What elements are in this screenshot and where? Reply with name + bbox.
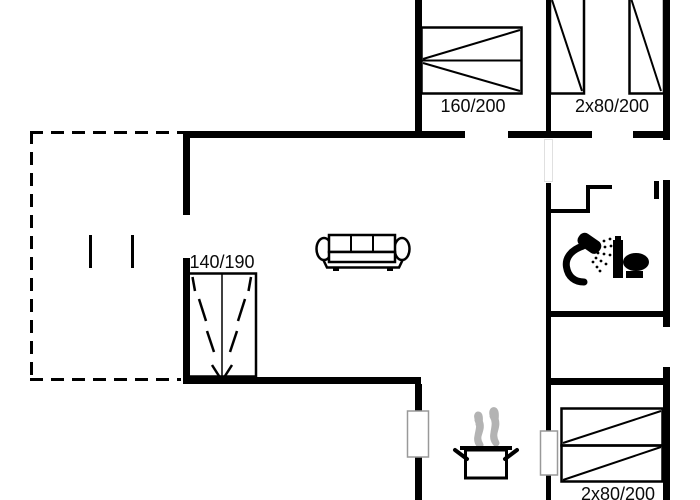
shower-icon bbox=[566, 230, 612, 282]
wall-segment bbox=[183, 138, 190, 215]
bed-size-label-140-190: 140/190 bbox=[189, 252, 254, 272]
sofa-icon bbox=[317, 235, 410, 271]
window-marker bbox=[541, 431, 558, 475]
double-bed-icon bbox=[188, 274, 256, 377]
terrace-outline bbox=[30, 131, 183, 381]
doorway-marker bbox=[545, 140, 553, 182]
wall-segment bbox=[663, 367, 670, 500]
wall-segment bbox=[586, 185, 590, 213]
toilet-icon bbox=[613, 236, 649, 278]
twin-beds-icon bbox=[562, 409, 663, 482]
wall-segment bbox=[663, 180, 670, 327]
bed-size-label-2x80-200-bottom: 2x80/200 bbox=[581, 484, 655, 500]
wall-segment bbox=[633, 131, 663, 138]
wall-segment bbox=[546, 183, 551, 431]
cooking-pot-icon bbox=[455, 446, 517, 478]
bed-size-label-160-200: 160/200 bbox=[440, 96, 505, 116]
wall-segment bbox=[586, 185, 612, 189]
bed-size-label-2x80-200-top: 2x80/200 bbox=[575, 96, 649, 116]
steam-icon bbox=[478, 411, 496, 445]
wall-segment bbox=[183, 131, 465, 138]
wall-segment bbox=[546, 474, 551, 500]
wall-segment bbox=[654, 181, 659, 199]
wall-segment bbox=[548, 311, 670, 317]
floor-plan-drawing bbox=[0, 0, 700, 500]
window-marker bbox=[408, 411, 429, 457]
wall-segment bbox=[508, 131, 592, 138]
twin-beds-icon bbox=[550, 0, 664, 94]
floor-plan: 160/200 2x80/200 140/190 2x80/200 bbox=[0, 0, 700, 500]
wall-segment bbox=[183, 377, 421, 384]
wall-segment bbox=[548, 378, 670, 385]
double-bed-icon bbox=[422, 28, 522, 94]
wall-segment bbox=[551, 209, 590, 213]
